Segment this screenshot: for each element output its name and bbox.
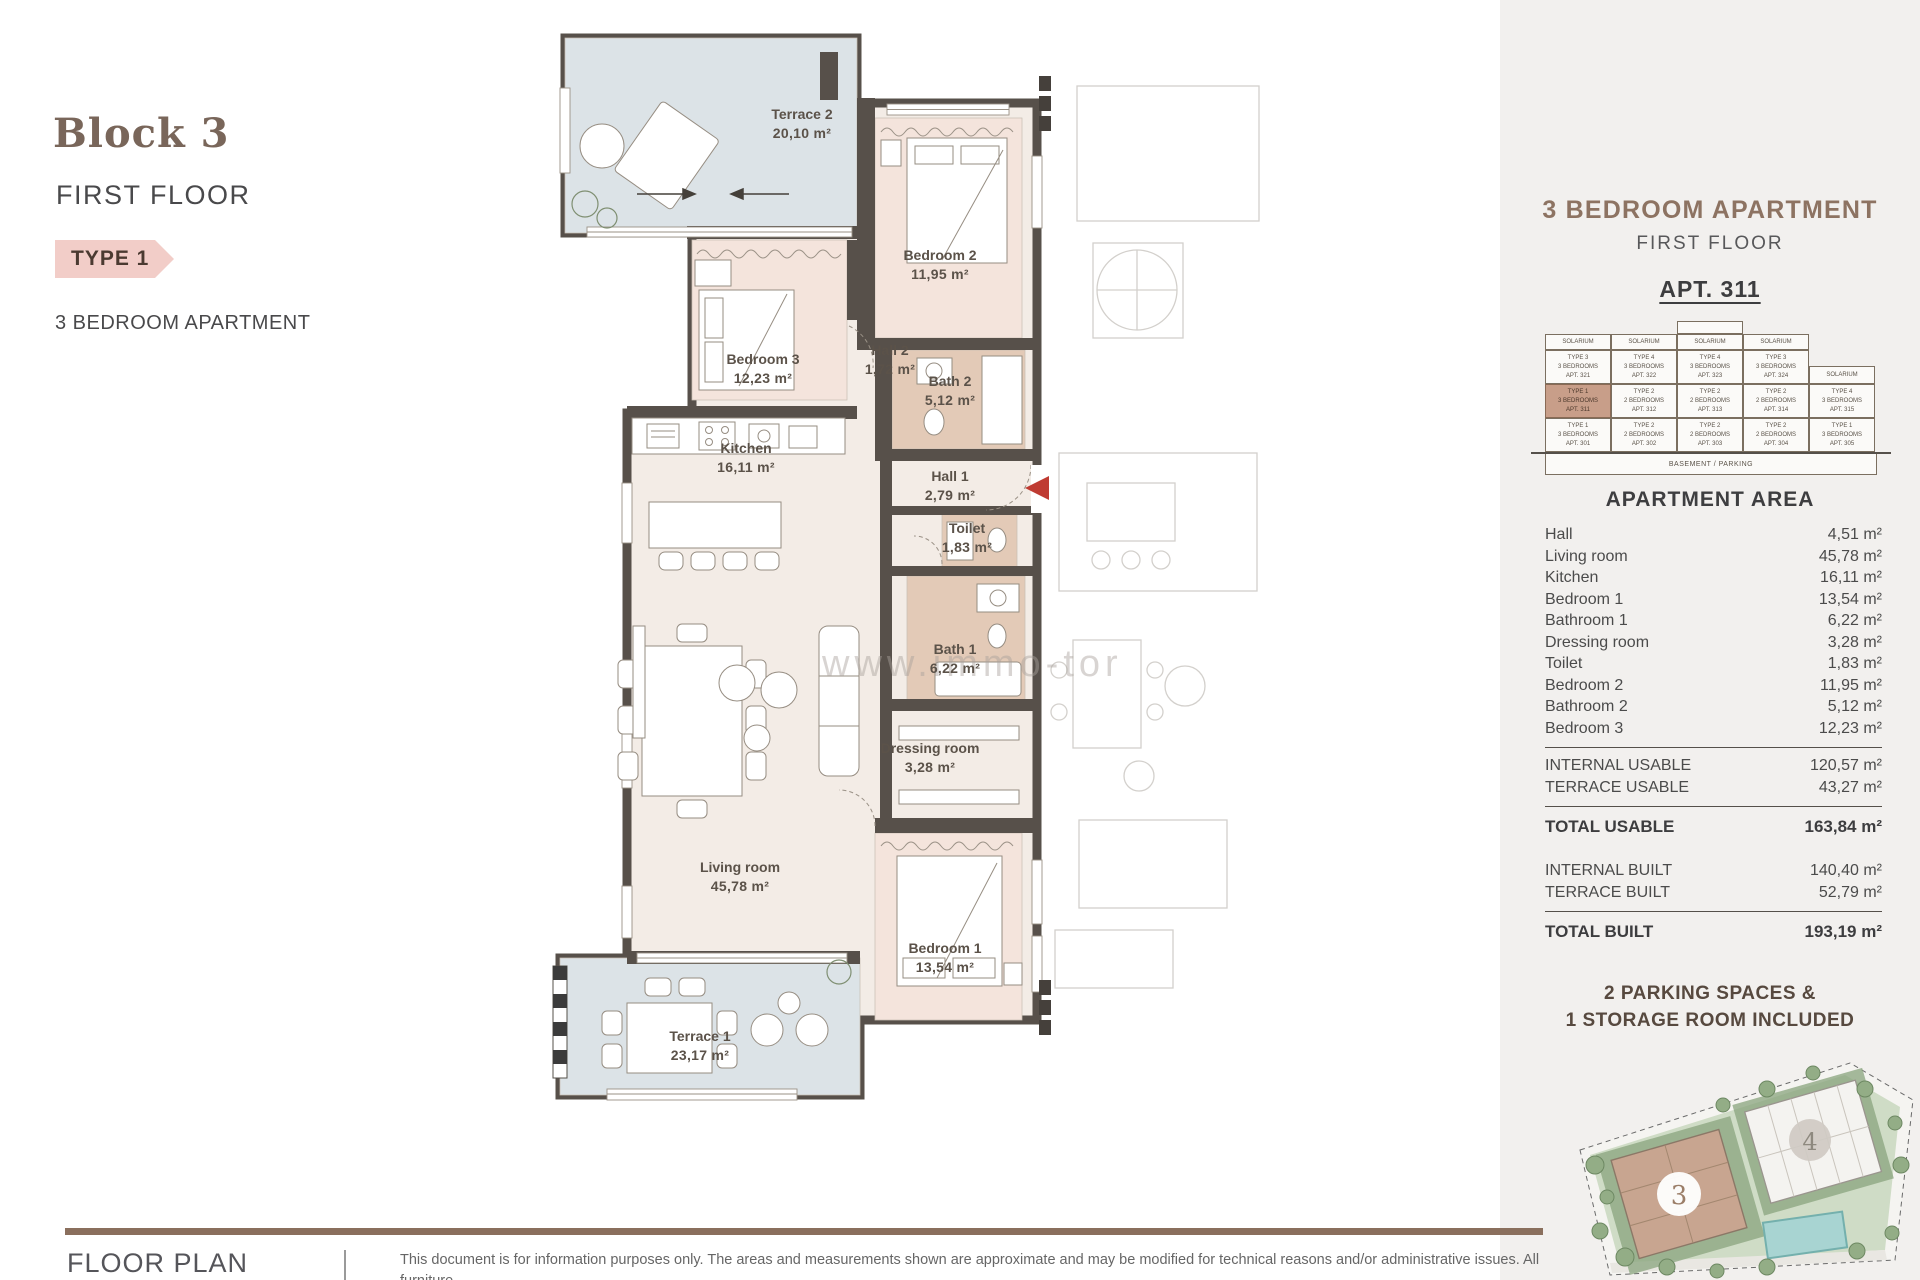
diagram-cell: TYPE 43 BEDROOMSAPT. 323 [1677, 350, 1743, 384]
block-4-number: 4 [1802, 1128, 1817, 1156]
room-label-terrace-1: Terrace 123,17 m² [640, 1027, 760, 1065]
area-row: Bedroom 312,23 m² [1545, 718, 1882, 740]
area-row: Hall4,51 m² [1545, 524, 1882, 546]
diagram-cell: TYPE 43 BEDROOMSAPT. 315 [1809, 384, 1875, 418]
info-sidebar: 3 BEDROOM APARTMENT FIRST FLOOR APT. 311… [1500, 0, 1920, 1280]
diagram-cell: TYPE 33 BEDROOMSAPT. 324 [1743, 350, 1809, 384]
diagram-cell: TYPE 13 BEDROOMSAPT. 305 [1809, 418, 1875, 452]
diagram-cell-solarium: SOLARIUM [1677, 334, 1743, 350]
diagram-cell: TYPE 22 BEDROOMSAPT. 314 [1743, 384, 1809, 418]
diagram-floor-row: TYPE 13 BEDROOMSAPT. 301TYPE 22 BEDROOMS… [1545, 418, 1877, 452]
diagram-cell: TYPE 43 BEDROOMSAPT. 322 [1611, 350, 1677, 384]
room-label-bath-2: Bath 25,12 m² [890, 372, 1010, 410]
neighbor-unit-outline [1051, 86, 1259, 988]
block-title: Block 3 [53, 110, 230, 157]
kitchen-island [649, 502, 781, 548]
site-plan: 4 3 [1555, 1045, 1920, 1280]
diagram-cell: TYPE 13 BEDROOMSAPT. 301 [1545, 418, 1611, 452]
footer-disclaimer: This document is for information purpose… [400, 1250, 1545, 1280]
apartment-type-label: 3 BEDROOM APARTMENT [55, 312, 310, 335]
area-row: Living room45,78 m² [1545, 546, 1882, 568]
diagram-tower [1677, 321, 1743, 334]
area-row: INTERNAL BUILT140,40 m² [1545, 860, 1882, 882]
floor-title: FIRST FLOOR [56, 180, 251, 211]
brochure-page: Block 3 FIRST FLOOR TYPE 1 3 BEDROOM APA… [0, 0, 1920, 1280]
area-row: Bathroom 25,12 m² [1545, 696, 1882, 718]
area-row: Bedroom 113,54 m² [1545, 589, 1882, 611]
diagram-cell: TYPE 22 BEDROOMSAPT. 302 [1611, 418, 1677, 452]
area-row: INTERNAL USABLE120,57 m² [1545, 755, 1882, 777]
area-row: Dressing room3,28 m² [1545, 632, 1882, 654]
terrace2-table [580, 124, 624, 168]
diagram-cell-current-apartment: TYPE 13 BEDROOMSAPT. 311 [1545, 384, 1611, 418]
type-tag-label: TYPE 1 [71, 247, 149, 270]
area-row: TERRACE USABLE43,27 m² [1545, 777, 1882, 799]
area-row: Toilet1,83 m² [1545, 653, 1882, 675]
diagram-cell: TYPE 22 BEDROOMSAPT. 313 [1677, 384, 1743, 418]
parking-note: 2 PARKING SPACES & 1 STORAGE ROOM INCLUD… [1500, 980, 1920, 1034]
block-3-number: 3 [1671, 1181, 1688, 1211]
room-label-living-room: Living room45,78 m² [680, 858, 800, 896]
footer-rule [65, 1228, 1543, 1235]
diagram-spacer [1809, 334, 1875, 350]
room-label-bedroom-1: Bedroom 113,54 m² [885, 939, 1005, 977]
striped-window-bar [553, 966, 567, 1078]
apartment-area-table: Hall4,51 m²Living room45,78 m²Kitchen16,… [1545, 524, 1882, 945]
diagram-cell-solarium: SOLARIUM [1611, 334, 1677, 350]
room-label-bedroom-3: Bedroom 312,23 m² [703, 350, 823, 388]
room-label-toilet: Toilet1,83 m² [907, 519, 1027, 557]
diagram-cell-solarium: SOLARIUM [1545, 334, 1611, 350]
diagram-cell-solarium: SOLARIUM [1743, 334, 1809, 350]
footer-divider [344, 1250, 346, 1280]
diagram-cell-solarium: SOLARIUM [1809, 366, 1875, 384]
room-label-bedroom-2: Bedroom 211,95 m² [880, 246, 1000, 284]
area-row: TOTAL BUILT193,19 m² [1545, 919, 1882, 945]
diagram-floor-row: TYPE 13 BEDROOMSAPT. 311TYPE 22 BEDROOMS… [1545, 384, 1877, 418]
diagram-cell: TYPE 33 BEDROOMSAPT. 321 [1545, 350, 1611, 384]
diagram-cell: TYPE 22 BEDROOMSAPT. 303 [1677, 418, 1743, 452]
room-label-kitchen: Kitchen16,11 m² [686, 439, 806, 477]
sidebar-subtitle: FIRST FLOOR [1500, 233, 1920, 255]
room-label-terrace-2: Terrace 220,10 m² [742, 105, 862, 143]
apartment-number: APT. 311 [1500, 276, 1920, 303]
floor-plan: www.immo-tor Terrace 220,10 m² Bedroom 2… [437, 28, 1267, 1103]
area-row: Kitchen16,11 m² [1545, 567, 1882, 589]
footer-section-label: FLOOR PLAN [67, 1248, 248, 1279]
diagram-cell: TYPE 22 BEDROOMSAPT. 312 [1611, 384, 1677, 418]
area-row: Bathroom 16,22 m² [1545, 610, 1882, 632]
sidebar-title: 3 BEDROOM APARTMENT [1500, 196, 1920, 225]
area-row: TERRACE BUILT52,79 m² [1545, 882, 1882, 904]
diagram-basement: BASEMENT / PARKING [1545, 454, 1877, 475]
diagram-cell: TYPE 22 BEDROOMSAPT. 304 [1743, 418, 1809, 452]
area-section-title: APARTMENT AREA [1500, 488, 1920, 512]
area-row: Bedroom 211,95 m² [1545, 675, 1882, 697]
floor-plan-drawing: www.immo-tor [437, 28, 1267, 1103]
area-row: TOTAL USABLE163,84 m² [1545, 814, 1882, 840]
type-tag: TYPE 1 [55, 240, 155, 278]
diagram-solarium-row: SOLARIUMSOLARIUMSOLARIUMSOLARIUM [1545, 334, 1877, 350]
room-label-dressing-room: Dressing room3,28 m² [870, 739, 990, 777]
room-label-hall-1: Hall 12,79 m² [890, 467, 1010, 505]
diagram-floor-row: TYPE 33 BEDROOMSAPT. 321TYPE 43 BEDROOMS… [1545, 350, 1877, 384]
building-stack-diagram: SOLARIUMSOLARIUMSOLARIUMSOLARIUMTYPE 33 … [1545, 334, 1877, 475]
room-label-bath-1: Bath 16,22 m² [895, 640, 1015, 678]
